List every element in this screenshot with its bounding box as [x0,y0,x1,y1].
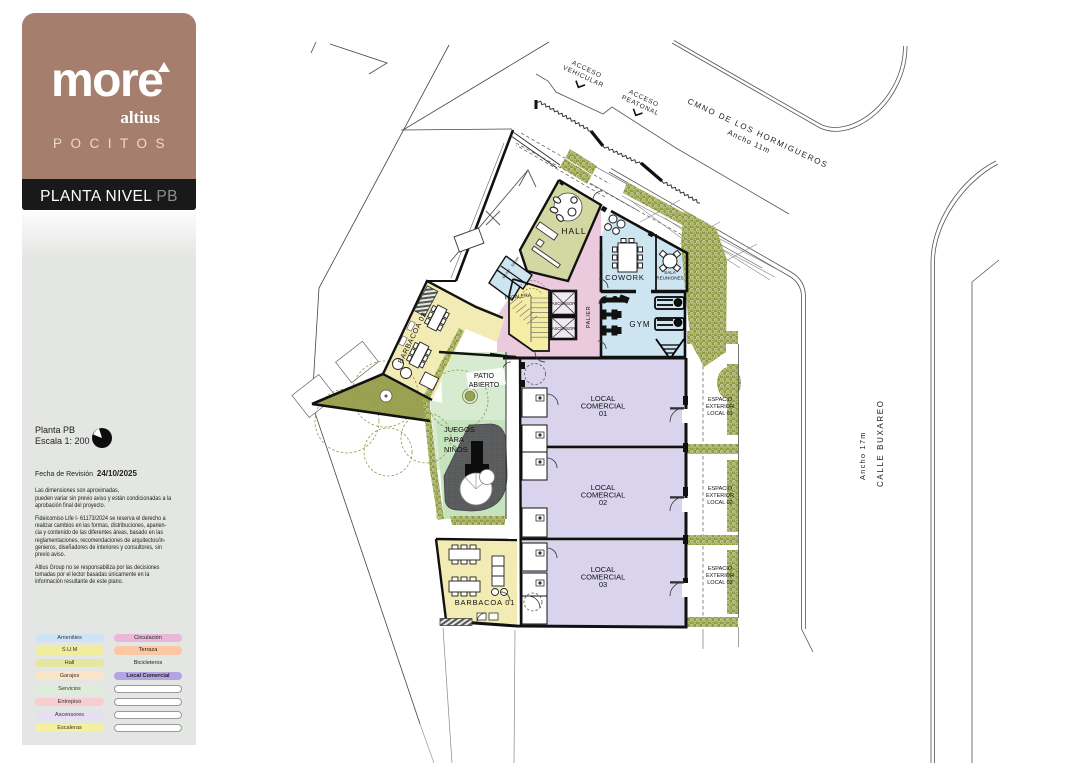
svg-text:01: 01 [599,409,607,418]
svg-text:GYM: GYM [629,320,650,329]
svg-text:LOCAL 02: LOCAL 02 [707,500,732,506]
svg-text:ASCENSOR: ASCENSOR [552,326,576,331]
svg-text:ESPACIO: ESPACIO [708,486,733,492]
svg-text:ASCENSOR: ASCENSOR [552,301,576,306]
svg-text:HALL: HALL [561,226,586,236]
svg-text:COWORK: COWORK [605,273,644,282]
svg-text:BARBACOA 01: BARBACOA 01 [455,598,516,607]
svg-text:REUNIONES: REUNIONES [656,276,683,281]
svg-text:LOCAL 01: LOCAL 01 [707,411,732,417]
svg-text:ESPACIO: ESPACIO [708,397,733,403]
svg-text:SALA: SALA [664,270,677,275]
svg-text:LOCAL 03: LOCAL 03 [707,580,732,586]
svg-text:EXTERIOR: EXTERIOR [706,573,734,579]
svg-text:PATIO: PATIO [474,373,495,380]
svg-text:Ancho 17m: Ancho 17m [858,431,867,480]
svg-text:CMNO DE LOS HORMIGUEROS: CMNO DE LOS HORMIGUEROS [686,97,829,170]
svg-text:ABIERTO: ABIERTO [469,382,500,389]
svg-text:EXTERIOR: EXTERIOR [706,493,734,499]
svg-text:EXTERIOR: EXTERIOR [706,404,734,410]
svg-text:03: 03 [599,580,607,589]
svg-text:PALIER: PALIER [586,306,592,328]
svg-text:CALLE BUXAREO: CALLE BUXAREO [876,400,885,488]
svg-text:02: 02 [599,498,607,507]
svg-text:ESPACIO: ESPACIO [708,566,733,572]
